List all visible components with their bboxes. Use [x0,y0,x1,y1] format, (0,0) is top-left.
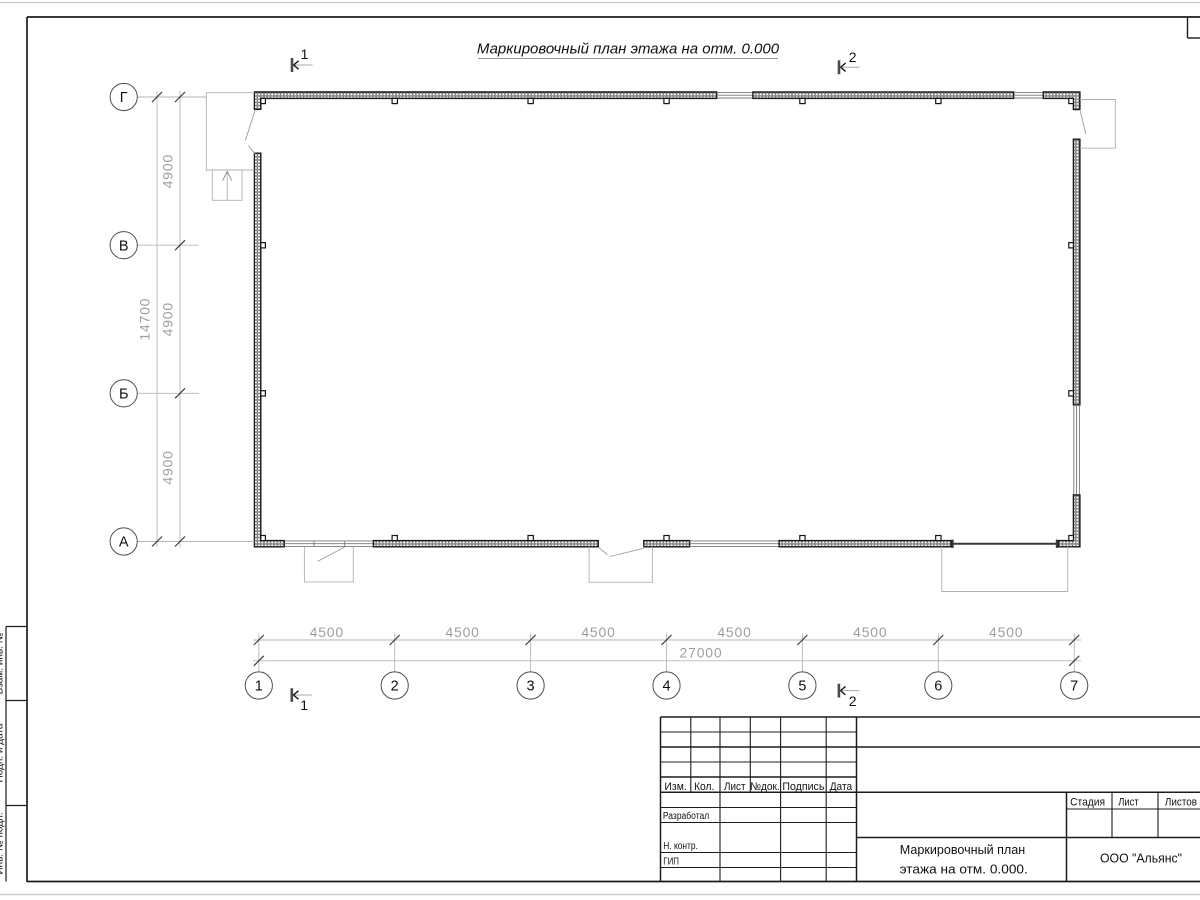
svg-text:14700: 14700 [137,298,153,341]
svg-text:Взам. инв. №: Взам. инв. № [0,632,6,694]
svg-text:4: 4 [662,679,670,695]
svg-text:Разработал: Разработал [663,810,709,822]
svg-text:2: 2 [391,679,399,695]
svg-text:7: 7 [1070,679,1078,695]
svg-text:Листов: Листов [1165,797,1197,809]
svg-text:1: 1 [255,679,263,695]
svg-text:4900: 4900 [160,450,176,484]
svg-text:Стадия: Стадия [1070,797,1105,809]
svg-text:4500: 4500 [445,624,479,640]
svg-text:Маркировочный план: Маркировочный план [900,842,1025,857]
svg-text:5: 5 [798,679,806,695]
svg-text:1: 1 [301,46,309,62]
svg-text:В: В [119,238,129,254]
svg-text:Лист: Лист [1118,797,1138,809]
svg-text:27000: 27000 [680,645,723,661]
svg-text:Маркировочный план этажа на от: Маркировочный план этажа на отм. 0.000 [477,41,780,58]
svg-text:1: 1 [300,697,308,713]
svg-text:4500: 4500 [581,624,615,640]
svg-text:А: А [119,535,129,551]
svg-text:4900: 4900 [160,154,176,188]
svg-text:Дата: Дата [830,781,853,793]
svg-text:Б: Б [119,387,129,403]
svg-text:Г: Г [120,90,128,106]
svg-text:4500: 4500 [310,624,344,640]
svg-text:4500: 4500 [717,624,751,640]
svg-text:2: 2 [849,49,857,65]
svg-text:Подпись: Подпись [782,781,824,793]
svg-text:4900: 4900 [160,302,176,336]
svg-text:4500: 4500 [853,624,887,640]
svg-text:Подп. и дата: Подп. и дата [0,723,6,782]
svg-text:Н. контр.: Н. контр. [663,841,698,852]
svg-text:Инв. № подл.: Инв. № подл. [0,812,6,874]
svg-text:Кол.: Кол. [694,781,714,793]
svg-text:2: 2 [849,693,857,709]
svg-text:ГИП: ГИП [663,857,679,868]
svg-text:Изм.: Изм. [664,781,686,793]
svg-text:3: 3 [527,679,535,695]
svg-text:ООО "Альянс": ООО "Альянс" [1100,851,1182,866]
svg-text:6: 6 [934,679,942,695]
svg-text:Лист: Лист [724,781,746,793]
svg-text:№док.: №док. [750,781,780,793]
svg-text:4500: 4500 [989,624,1023,640]
svg-text:этажа на отм. 0.000.: этажа на отм. 0.000. [900,862,1028,877]
